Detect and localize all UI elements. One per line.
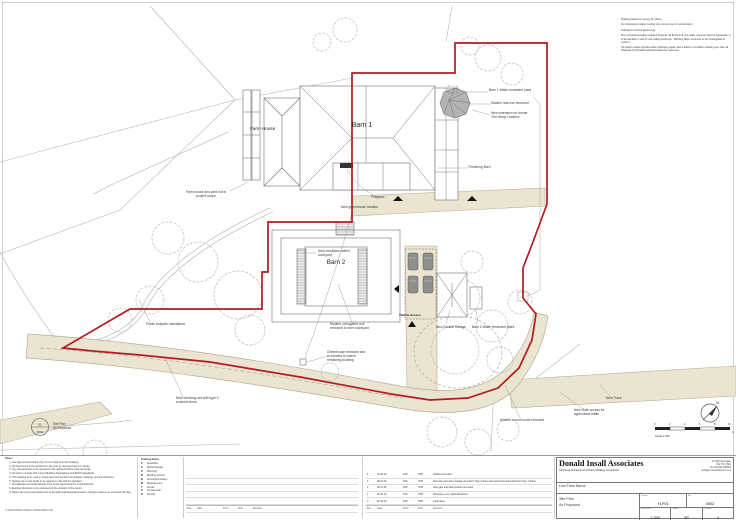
note-item: Fire compartmentation required between a… [617, 34, 731, 44]
label-corrugated-roof: Modern corrugated roof removed to form c… [330, 322, 388, 330]
field-label: Status [672, 508, 678, 510]
field-label: Project [641, 495, 647, 497]
field-label: Scale (A1) [641, 508, 651, 510]
label-new-track: New Track [606, 396, 636, 400]
status-label: Record [147, 493, 155, 496]
note-item: For discussion/outline costing only, do … [617, 23, 731, 26]
copyright-line: © 2020 DONALD INSALL ASSOCIATES LTD [5, 509, 53, 512]
status-label: Construction [147, 489, 161, 492]
label-greenhouse-moved: Greenhouse removed and re-erected to mat… [327, 350, 377, 362]
svg-text:m: m [732, 431, 734, 434]
label-new-extension: New extension on former 'Old Hang' Locat… [491, 111, 561, 119]
revision-row: 328.01.20 DJSTOB Driveway amended. Garag… [366, 479, 552, 486]
north-label: N [716, 400, 719, 405]
scale-bar: 0 2 4 6 8 10 m Scale 1:200 [654, 422, 734, 438]
status-code: F [141, 462, 145, 465]
rev-col-header: Rev [366, 507, 376, 510]
status-code: D [141, 478, 145, 481]
status-code: P [141, 470, 145, 473]
firm-tagline: Chartered Architects and Historic Buildi… [559, 469, 644, 472]
firm-name: Donald Insall Associates [559, 460, 644, 468]
note-li: Report all survey inconsistencies to Don… [12, 492, 133, 495]
status-label: Tender [147, 486, 155, 489]
revision-row: 407.06.20 DJSTOB Redline amended [366, 472, 552, 479]
field-label: Revision [704, 508, 712, 510]
label-threshing-barn: Threshing Barn [468, 165, 513, 169]
general-notes: Drawing based on survey by others. For d… [617, 18, 731, 55]
status-code: S [141, 466, 145, 469]
drawing-title-line2: As Proposed [559, 502, 637, 508]
rev-col-header: Drwn [222, 507, 237, 510]
field-scale: Scale (A1) 1:200 [640, 508, 670, 520]
svg-text:6: 6 [699, 422, 701, 426]
scale-label: Scale 1:200 [655, 434, 670, 438]
strip-divider [137, 457, 138, 518]
strip-divider [362, 457, 363, 518]
status-label: Sketch Design [147, 466, 163, 469]
field-value: 4002 [706, 502, 714, 506]
address-line: york@insall-architects.co.uk [701, 469, 731, 472]
svg-text:4002: 4002 [37, 430, 44, 434]
label-vehicle-access: Vehicle Access [399, 314, 431, 318]
field-number: No. 4002 [686, 494, 733, 508]
title-block: Donald Insall Associates Chartered Archi… [556, 457, 734, 519]
label-public-footpath: Public footpath maintained [146, 322, 188, 326]
strip-divider [183, 457, 184, 518]
label-barn1: Barn 1 [340, 122, 384, 131]
rev-col-header: Rev [186, 507, 196, 510]
field-value: 3P [684, 516, 689, 520]
status-code: R [141, 493, 145, 496]
status-label: Building Control [147, 474, 165, 477]
rev-col-header: Drwn [402, 507, 417, 510]
field-status: Status 3P [670, 508, 701, 520]
drawing-sheet: N 0 2 4 6 8 10 m Scale 1:200 01 4002 Far… [0, 0, 736, 520]
status-label: Developed Design [147, 478, 167, 481]
svg-text:01: 01 [38, 423, 42, 427]
ref-symbol-caption: Site Plan As Proposed [53, 422, 71, 430]
strip-divider [554, 457, 555, 518]
drawing-status-legend: Drawing Status FFeasibility SSketch Desi… [141, 458, 181, 497]
field-value: YLF01 [657, 502, 668, 506]
label-farm-house: Farm House [250, 126, 300, 132]
firm-address: 10 High Petergate York YO1 7EN +44 (0)19… [701, 460, 731, 481]
svg-text:10: 10 [728, 422, 731, 426]
status-code: T [141, 486, 145, 489]
revision-table-blank: Rev Date Drwn Auth Revision [186, 472, 358, 513]
label-circulation: New circulation within courtyard [318, 249, 366, 257]
status-code: C [141, 489, 145, 492]
label-round-house: Modern round house removed [500, 418, 558, 422]
field-value: 4 [717, 516, 719, 520]
label-barn2: Barn 2 [310, 259, 362, 267]
rev-col-header: Date [376, 507, 402, 510]
svg-text:8: 8 [714, 422, 716, 426]
svg-text:0: 0 [654, 422, 656, 426]
label-fireplace: Fireplace [371, 195, 397, 199]
status-label: Measurement [147, 482, 162, 485]
svg-text:2: 2 [669, 422, 671, 426]
drawing-title: Site Plan As Proposed [557, 494, 639, 520]
lane-footpath-lines [62, 132, 273, 352]
rev-col-header: Date [196, 507, 222, 510]
rev-col-header: Auth [417, 507, 432, 510]
status-label: Planning [147, 470, 157, 473]
revision-row: 206.11.19 DJSTOB New gate and track posi… [366, 485, 552, 492]
rev-col-header: Revision [432, 507, 552, 510]
label-farm-yard-scope: Farm house and yard not in project scope [170, 190, 242, 198]
status-label: Feasibility [147, 462, 158, 465]
field-revision: Revision 4 [702, 508, 733, 520]
drawing-status-title: Drawing Status [141, 458, 181, 461]
revision-row: 002.10.19 DJSTOB Initial issue [366, 498, 552, 505]
rev-col-header: Revision [252, 507, 358, 510]
label-barn1-wtp: Barn 1 Water treatment plant [489, 88, 567, 92]
status-code: B [141, 474, 145, 477]
label-double-garage: New Double Garage [436, 325, 476, 329]
revision-table: 407.06.20 DJSTOB Redline amended 328.01.… [366, 472, 552, 513]
label-lean-tos: Modern lean-tos removed [491, 101, 561, 105]
note-item: No works require full decoration followi… [617, 46, 731, 52]
label-barn2-wtp: Barn 2 Water treatment plant [472, 325, 530, 329]
greenhouse-marker [300, 359, 306, 365]
svg-text:4: 4 [684, 422, 686, 426]
label-new-gate: New Gate access for agricultural traffic [574, 408, 622, 416]
north-arrow: N [701, 400, 719, 422]
fireplace-marker [340, 163, 353, 168]
status-code: M [141, 482, 145, 485]
field-label: No. [688, 495, 691, 497]
revision-row: 125.10.19 DJSTOB Driveway re-set, label … [366, 492, 552, 499]
label-new-driveway: New driveway set with type 3 crushed sto… [176, 396, 234, 404]
field-project: Project YLF01 [640, 494, 686, 508]
project-name: Low Farm Barns [557, 483, 733, 494]
field-value: 1:200 [650, 516, 660, 520]
note-item: Drawing based on survey by others. [617, 18, 731, 21]
note-item: Indicative furniture layout only. [617, 29, 731, 32]
notes-block: Notes: Use figured dimensions only; do n… [5, 458, 133, 496]
site-plan-drawing: N 0 2 4 6 8 10 m Scale 1:200 01 4002 [0, 0, 736, 455]
label-new-greenhouse: New greenhouse location [341, 205, 387, 209]
rev-col-header: Auth [237, 507, 252, 510]
